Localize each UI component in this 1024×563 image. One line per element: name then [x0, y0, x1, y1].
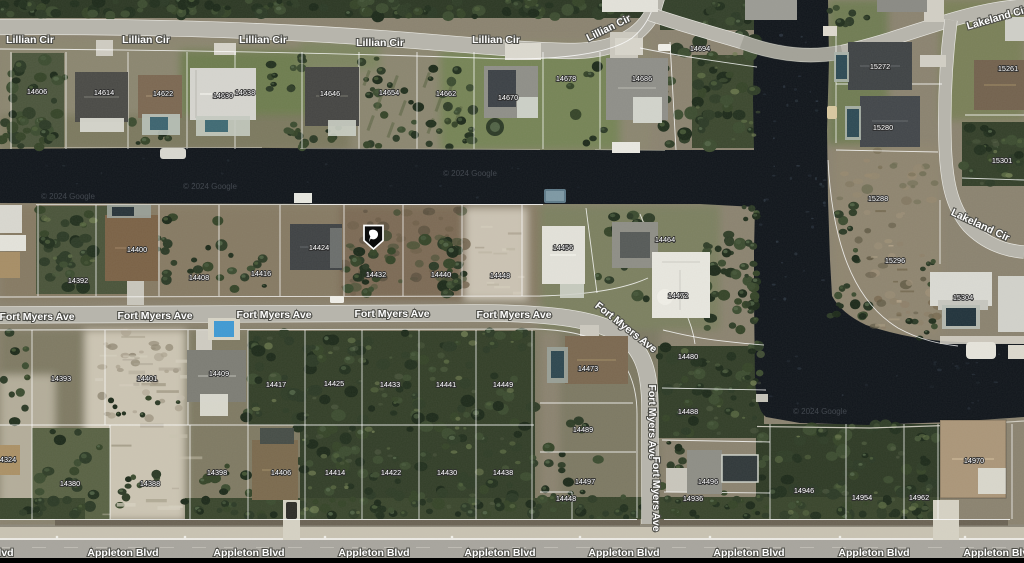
- svg-text:Appleton Blvd: Appleton Blvd: [713, 547, 784, 558]
- svg-text:Appleton Blvd: Appleton Blvd: [213, 547, 284, 558]
- svg-text:14398: 14398: [207, 468, 227, 477]
- svg-text:15272: 15272: [870, 62, 890, 71]
- svg-text:14622: 14622: [153, 89, 173, 98]
- svg-text:Appleton Blvd: Appleton Blvd: [464, 547, 535, 558]
- svg-text:14970: 14970: [964, 456, 984, 465]
- svg-text:14400: 14400: [127, 245, 147, 254]
- svg-text:15301: 15301: [992, 156, 1012, 165]
- svg-text:14473: 14473: [578, 364, 598, 373]
- svg-text:14392: 14392: [68, 276, 88, 285]
- svg-text:14414: 14414: [325, 468, 345, 477]
- svg-text:Lillian Cir: Lillian Cir: [122, 34, 170, 46]
- svg-text:14646: 14646: [320, 89, 340, 98]
- svg-text:14472: 14472: [668, 291, 688, 300]
- svg-text:14393: 14393: [51, 374, 71, 383]
- svg-text:14448: 14448: [556, 494, 576, 503]
- svg-text:14489: 14489: [573, 425, 593, 434]
- svg-text:14497: 14497: [575, 477, 595, 486]
- svg-text:Appleton Blvd: Appleton Blvd: [0, 547, 14, 558]
- svg-text:14440: 14440: [431, 270, 451, 279]
- svg-text:14670: 14670: [498, 93, 518, 102]
- svg-text:Lillian Cir: Lillian Cir: [356, 37, 404, 49]
- svg-text:Fort Myers Ave: Fort Myers Ave: [0, 311, 75, 323]
- svg-text:Fort Myers Ave: Fort Myers Ave: [354, 308, 429, 320]
- svg-text:15288: 15288: [868, 194, 888, 203]
- svg-text:14488: 14488: [678, 407, 698, 416]
- svg-text:14422: 14422: [381, 468, 401, 477]
- svg-text:Lillian Cir: Lillian Cir: [239, 34, 287, 46]
- svg-text:14606: 14606: [27, 87, 47, 96]
- svg-text:14630: 14630: [213, 91, 233, 100]
- svg-text:Appleton Blvd: Appleton Blvd: [87, 547, 158, 558]
- svg-text:14448: 14448: [490, 271, 510, 280]
- svg-text:Appleton Blvd: Appleton Blvd: [838, 547, 909, 558]
- svg-text:14409: 14409: [209, 369, 229, 378]
- svg-text:14401: 14401: [137, 374, 157, 383]
- svg-text:14388: 14388: [140, 479, 160, 488]
- svg-text:14946: 14946: [794, 486, 814, 495]
- svg-text:14614: 14614: [94, 88, 114, 97]
- svg-text:15261: 15261: [998, 64, 1018, 73]
- svg-text:14954: 14954: [852, 493, 872, 502]
- svg-text:14438: 14438: [493, 468, 513, 477]
- svg-text:14456: 14456: [553, 243, 573, 252]
- svg-text:14406: 14406: [271, 468, 291, 477]
- svg-text:14496: 14496: [698, 477, 718, 486]
- svg-text:Appleton Blvd: Appleton Blvd: [588, 547, 659, 558]
- svg-text:Fort Myers Ave: Fort Myers Ave: [650, 456, 662, 531]
- svg-text:14430: 14430: [437, 468, 457, 477]
- svg-text:14662: 14662: [436, 89, 456, 98]
- svg-text:14654: 14654: [379, 88, 399, 97]
- svg-text:14380: 14380: [60, 479, 80, 488]
- svg-text:Fort Myers Ave: Fort Myers Ave: [236, 309, 311, 321]
- svg-text:14424: 14424: [309, 243, 329, 252]
- svg-text:14324: 14324: [0, 455, 16, 464]
- svg-text:14417: 14417: [266, 380, 286, 389]
- svg-text:14432: 14432: [366, 270, 386, 279]
- svg-text:14678: 14678: [556, 74, 576, 83]
- svg-text:Appleton Blvd: Appleton Blvd: [963, 547, 1024, 558]
- svg-text:14416: 14416: [251, 269, 271, 278]
- svg-text:Lillian Cir: Lillian Cir: [472, 34, 520, 46]
- svg-text:14480: 14480: [678, 352, 698, 361]
- svg-text:14408: 14408: [189, 273, 209, 282]
- svg-text:14449: 14449: [493, 380, 513, 389]
- svg-text:14464: 14464: [655, 235, 675, 244]
- svg-text:14433: 14433: [380, 380, 400, 389]
- svg-text:Fort Myers Ave: Fort Myers Ave: [476, 309, 551, 321]
- svg-text:14936: 14936: [683, 494, 703, 503]
- svg-text:15304: 15304: [953, 293, 973, 302]
- svg-text:Fort Myers Ave: Fort Myers Ave: [646, 384, 658, 459]
- svg-text:14638: 14638: [235, 88, 255, 97]
- svg-text:15280: 15280: [873, 123, 893, 132]
- svg-text:Lillian Cir: Lillian Cir: [6, 34, 54, 46]
- svg-text:Fort Myers Ave: Fort Myers Ave: [117, 310, 192, 322]
- svg-text:14425: 14425: [324, 379, 344, 388]
- svg-text:14686: 14686: [632, 74, 652, 83]
- svg-text:Appleton Blvd: Appleton Blvd: [338, 547, 409, 558]
- svg-text:14694: 14694: [690, 44, 710, 53]
- svg-text:14441: 14441: [436, 380, 456, 389]
- svg-text:15296: 15296: [885, 256, 905, 265]
- svg-text:14962: 14962: [909, 493, 929, 502]
